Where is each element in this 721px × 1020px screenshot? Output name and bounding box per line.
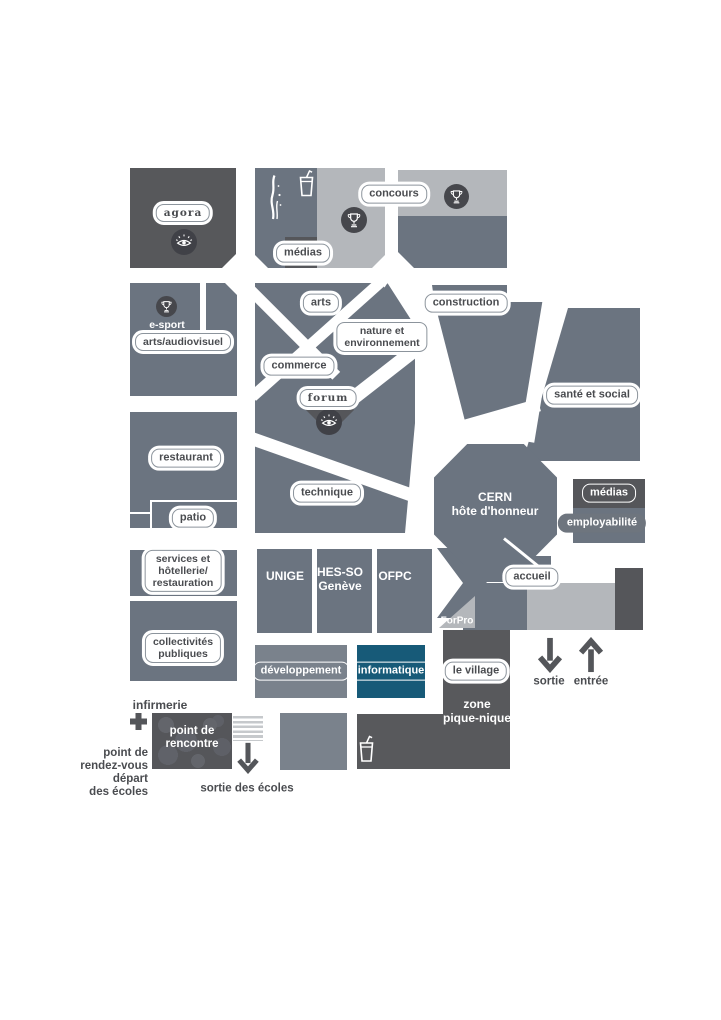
drink-cup-icon xyxy=(358,734,375,764)
first-aid-cross-icon xyxy=(130,713,147,730)
forpro-label: ForPro xyxy=(441,615,474,627)
sante-social-label: santé et social xyxy=(546,386,638,405)
zone-concours-bottom xyxy=(398,216,507,268)
restaurant-label: restaurant xyxy=(151,449,221,468)
unige-label: UNIGE xyxy=(266,570,304,584)
construction-label: construction xyxy=(425,294,508,313)
village-label: le village xyxy=(445,662,507,681)
entree-label: entrée xyxy=(574,675,609,688)
patio-label: patio xyxy=(172,509,214,528)
zone-pique-nique-label: zone pique-nique xyxy=(443,698,511,726)
zone-accueil-mid xyxy=(527,583,615,630)
water-jet-icon xyxy=(266,174,286,220)
zone-ofpc xyxy=(377,549,432,633)
eye-icon xyxy=(171,229,197,255)
medias-top-label: médias xyxy=(276,244,330,263)
technique-label: technique xyxy=(293,484,361,503)
arrow-down-icon xyxy=(537,637,563,673)
agora-label: agora xyxy=(156,204,210,222)
trophy-icon xyxy=(156,296,177,317)
arts-audiovisuel-label: arts/audiovisuel xyxy=(135,333,231,351)
informatique-label: informatique xyxy=(350,662,433,681)
nature-label: nature et environnement xyxy=(336,322,427,352)
rdv-ecoles-label: point de rendez-vous départ des écoles xyxy=(58,747,148,799)
trophy-icon xyxy=(444,184,469,209)
ofpc-label: OFPC xyxy=(378,570,411,584)
sortie-ecoles-label: sortie des écoles xyxy=(200,782,293,795)
services-label: services et hôtellerie/ restauration xyxy=(145,550,222,592)
cern-label: CERN hôte d'honneur xyxy=(452,491,539,519)
arrow-up-icon xyxy=(578,637,604,673)
developpement-label: développement xyxy=(253,662,350,681)
patio-corner-line xyxy=(130,512,150,514)
infirmerie-label: infirmerie xyxy=(133,699,188,713)
medias-right-label: médias xyxy=(582,484,636,503)
event-map: agora médias concours e-sport arts/audio… xyxy=(0,0,721,1020)
hesso-label: HES-SO Genève xyxy=(317,566,363,594)
esport-divider xyxy=(200,283,206,335)
esport-label: e-sport xyxy=(149,319,185,331)
concours-label: concours xyxy=(361,185,427,204)
employabilite-label: employabilité xyxy=(558,514,646,533)
zone-unige xyxy=(257,549,312,633)
zone-bottom-mid xyxy=(280,713,347,770)
arrow-down-icon xyxy=(237,742,259,774)
commerce-label: commerce xyxy=(263,357,334,376)
eye-icon xyxy=(316,409,342,435)
arts-label: arts xyxy=(303,294,339,313)
zone-accueil-right xyxy=(615,568,643,630)
crosswalk-stripes-icon xyxy=(233,716,263,741)
accueil-label: accueil xyxy=(505,568,558,587)
forum-label: forum xyxy=(300,389,357,407)
trophy-icon xyxy=(341,207,367,233)
drink-cup-icon xyxy=(298,170,315,197)
collectivites-label: collectivités publiques xyxy=(145,633,221,663)
point-rencontre-label: point de rencontre xyxy=(165,725,218,751)
sortie-label: sortie xyxy=(533,675,564,688)
